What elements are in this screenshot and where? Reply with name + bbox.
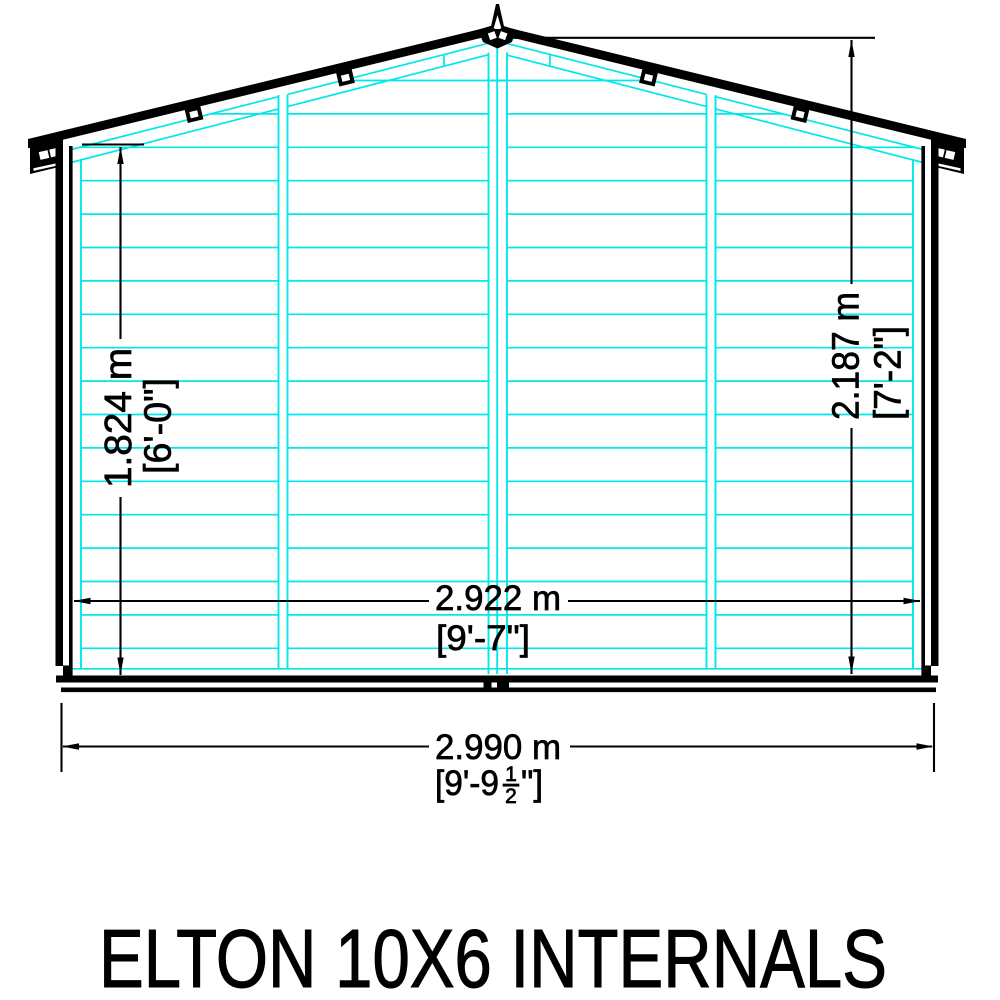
svg-text:1.824 m: 1.824 m [98, 348, 140, 488]
svg-text:2.922 m: 2.922 m [435, 579, 561, 618]
svg-text:[7'-2"]: [7'-2"] [868, 326, 910, 420]
svg-text:1: 1 [505, 763, 517, 786]
svg-text:2.990 m: 2.990 m [435, 728, 561, 767]
svg-text:2.187 m: 2.187 m [826, 292, 868, 420]
svg-text:[6'-0"]: [6'-0"] [138, 378, 180, 474]
svg-text:ELTON 10X6 INTERNALS: ELTON 10X6 INTERNALS [99, 912, 887, 1000]
svg-text:"]: "] [521, 764, 543, 803]
svg-text:2: 2 [505, 785, 517, 808]
svg-text:[9'-7"]: [9'-7"] [436, 619, 530, 658]
svg-text:[9'-9: [9'-9 [435, 764, 499, 803]
